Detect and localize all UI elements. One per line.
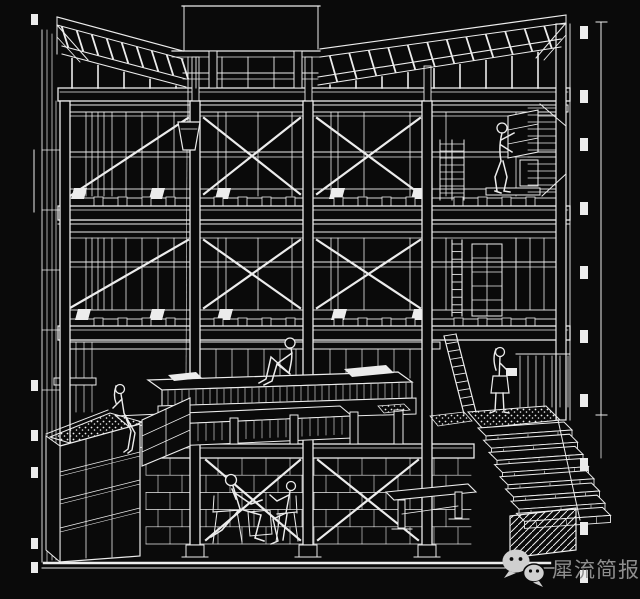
scale-ticks-left xyxy=(31,14,38,573)
stair-flight xyxy=(478,420,611,558)
watermark-text: 犀流简报 xyxy=(552,554,640,584)
drawing-canvas: 犀流简报 xyxy=(0,0,640,599)
dimension-line xyxy=(596,22,607,458)
sectional-perspective-drawing xyxy=(0,0,640,599)
figure-standing-landing xyxy=(490,348,517,414)
ground-lines xyxy=(42,563,554,568)
watermark: 犀流简报 xyxy=(501,548,640,590)
basement-furniture xyxy=(213,484,476,543)
wechat-icon xyxy=(501,548,547,590)
figure-seated-man-basement xyxy=(211,475,264,542)
